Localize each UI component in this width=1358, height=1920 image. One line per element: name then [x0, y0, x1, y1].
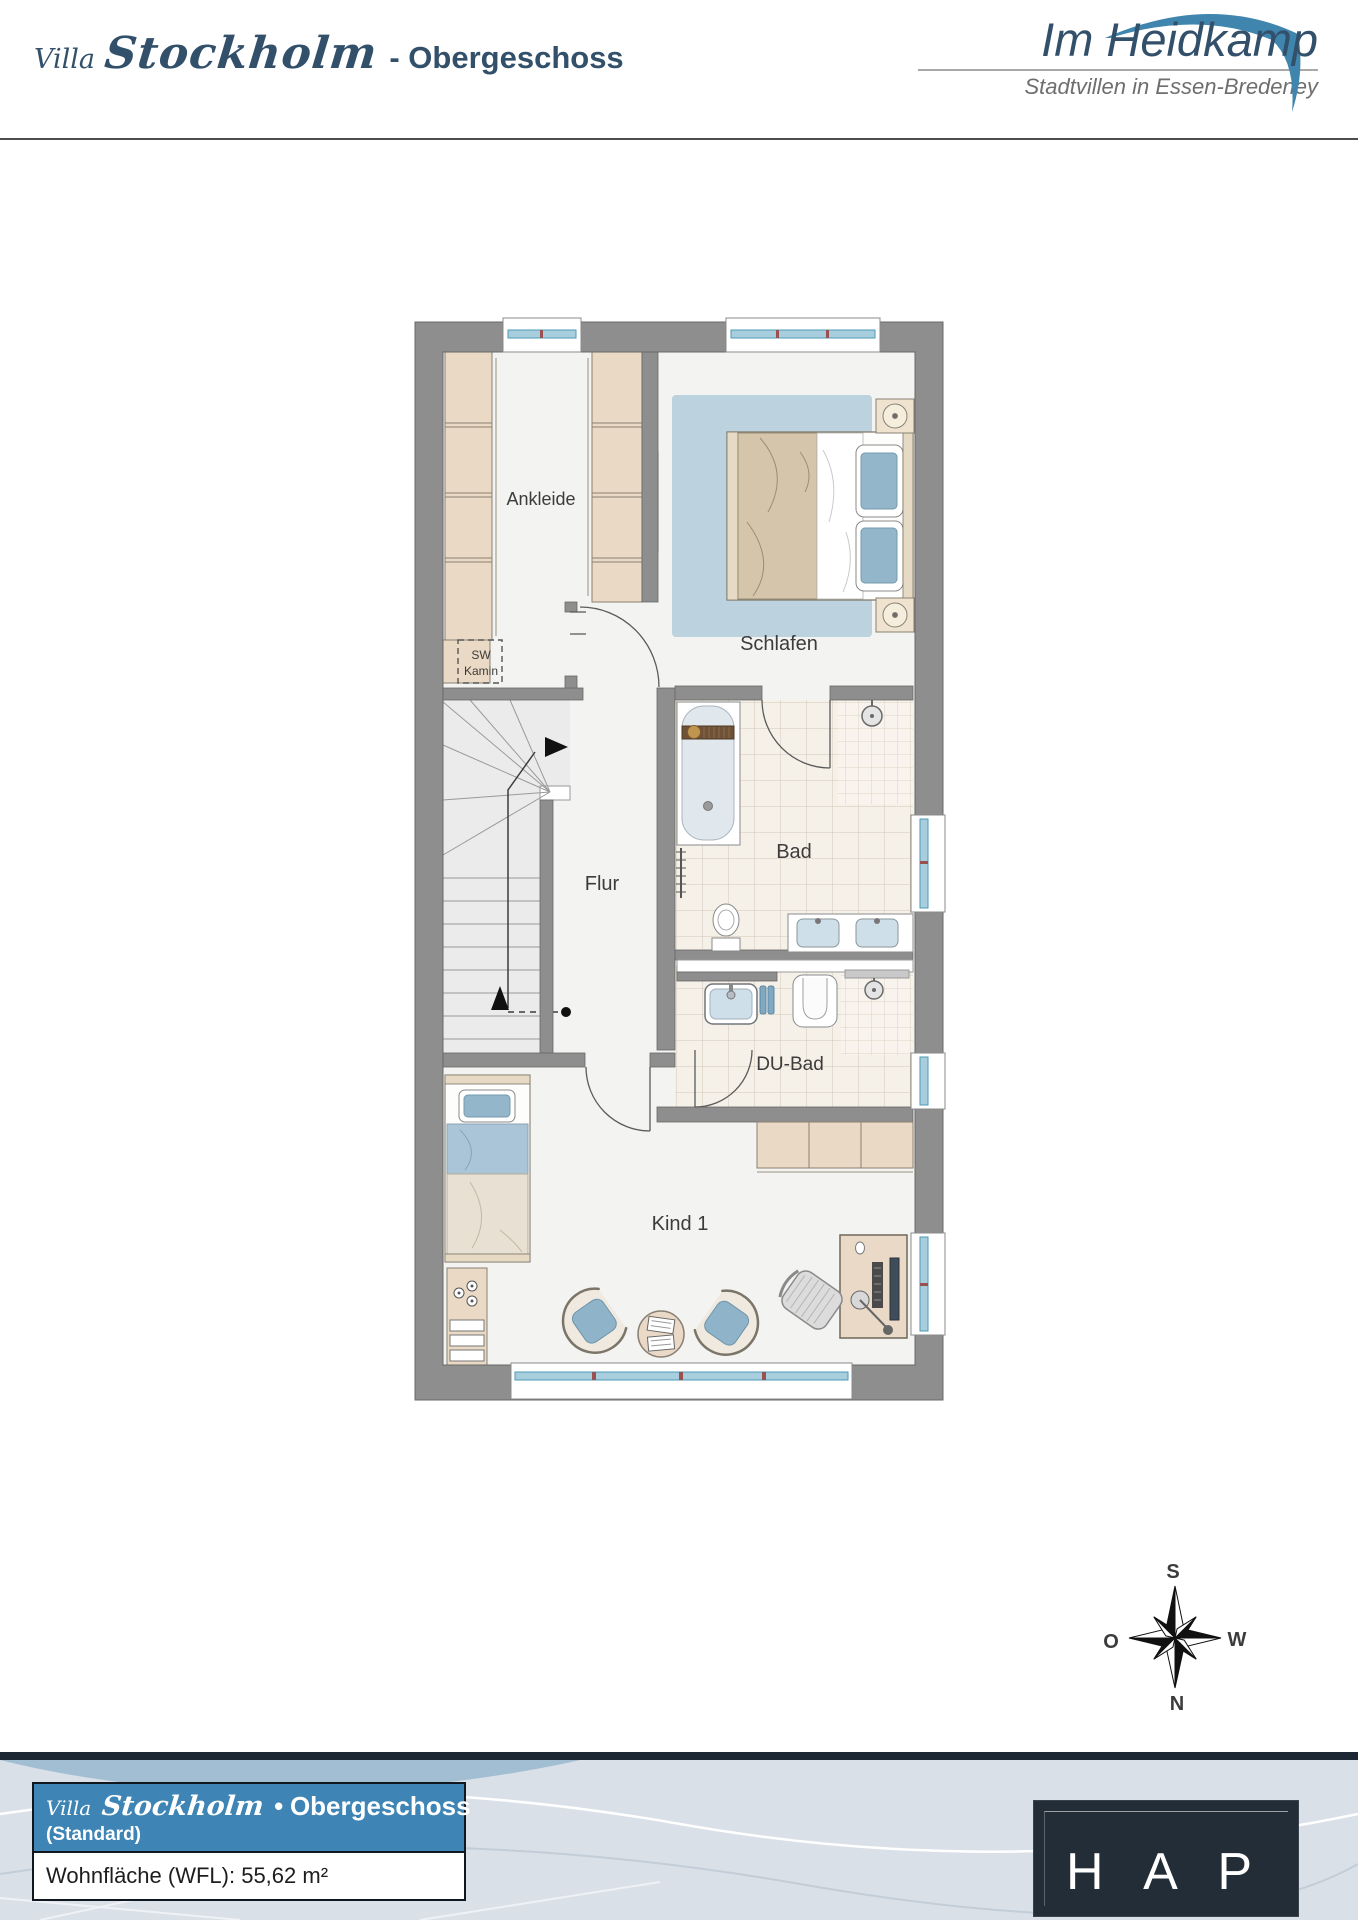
dubad-sink	[705, 984, 757, 1024]
compass-label-east: O	[1103, 1631, 1119, 1653]
double-vanity	[788, 914, 913, 952]
room-label-bad: Bad	[776, 841, 812, 863]
stair-walkline-dot	[561, 1007, 571, 1017]
hap-logo: H A P	[1033, 1800, 1299, 1917]
toilet-bad	[712, 904, 740, 951]
bathtub	[677, 702, 740, 845]
kind1-wardrobe-row	[757, 1122, 913, 1172]
tub-drain-icon	[704, 802, 713, 811]
footer-name: Stockholm	[100, 1791, 265, 1822]
footer-floor: Obergeschoss	[290, 1791, 471, 1821]
page-title: Villa Stockholm - Obergeschoss	[34, 28, 624, 79]
plan-info-header: Villa Stockholm • Obergeschoss (Standard…	[34, 1784, 464, 1853]
header-divider	[0, 138, 1358, 140]
compass-label-south: S	[1166, 1561, 1179, 1583]
title-name: Stockholm	[102, 28, 380, 79]
compass-star-icon	[1129, 1586, 1221, 1688]
living-area-value: Wohnfläche (WFL): 55,62 m²	[34, 1853, 464, 1899]
single-bed	[445, 1075, 530, 1262]
brand-name: Im Heidkamp	[918, 12, 1318, 67]
sink-faucet-icon	[874, 918, 880, 924]
toilet-dubad	[793, 975, 837, 1027]
dubad-wall-ledge	[677, 972, 777, 981]
keyboard-icon	[872, 1262, 883, 1308]
room-label-flur: Flur	[585, 873, 620, 895]
hap-logo-letters: H A P	[1034, 1842, 1298, 1902]
double-bed	[727, 432, 913, 600]
footer-villa: Villa	[46, 1796, 91, 1820]
side-table	[638, 1311, 684, 1357]
room-label-ankleide: Ankleide	[506, 489, 575, 509]
footer-variant: (Standard)	[46, 1824, 452, 1846]
ankleide-wardrobe-left	[445, 352, 496, 640]
compass-label-west: W	[1228, 1629, 1247, 1651]
title-floor: - Obergeschoss	[389, 40, 623, 76]
compass-rose: S W N O	[1085, 1560, 1265, 1730]
sink-faucet-icon	[727, 991, 735, 999]
kamin-label-2: Kamin	[464, 664, 498, 678]
desk	[840, 1235, 907, 1338]
tub-faucet-icon	[688, 726, 701, 739]
plan-info-box: Villa Stockholm • Obergeschoss (Standard…	[32, 1782, 466, 1901]
room-label-kind1: Kind 1	[652, 1213, 709, 1235]
title-villa: Villa	[34, 44, 95, 75]
kind1-side-unit	[447, 1268, 487, 1366]
compass-label-north: N	[1170, 1693, 1184, 1715]
ankleide-wardrobe-right	[588, 352, 642, 602]
sink-faucet-icon	[815, 918, 821, 924]
room-label-schlafen: Schlafen	[740, 633, 818, 655]
footer-divider	[0, 1752, 1358, 1760]
floor-plan: SW Kamin	[405, 310, 957, 1412]
monitor-icon	[890, 1258, 899, 1320]
mouse-icon	[856, 1242, 865, 1254]
kamin-label-1: SW	[471, 648, 491, 662]
footer-bullet: •	[274, 1791, 283, 1821]
room-label-dubad: DU-Bad	[756, 1054, 824, 1075]
